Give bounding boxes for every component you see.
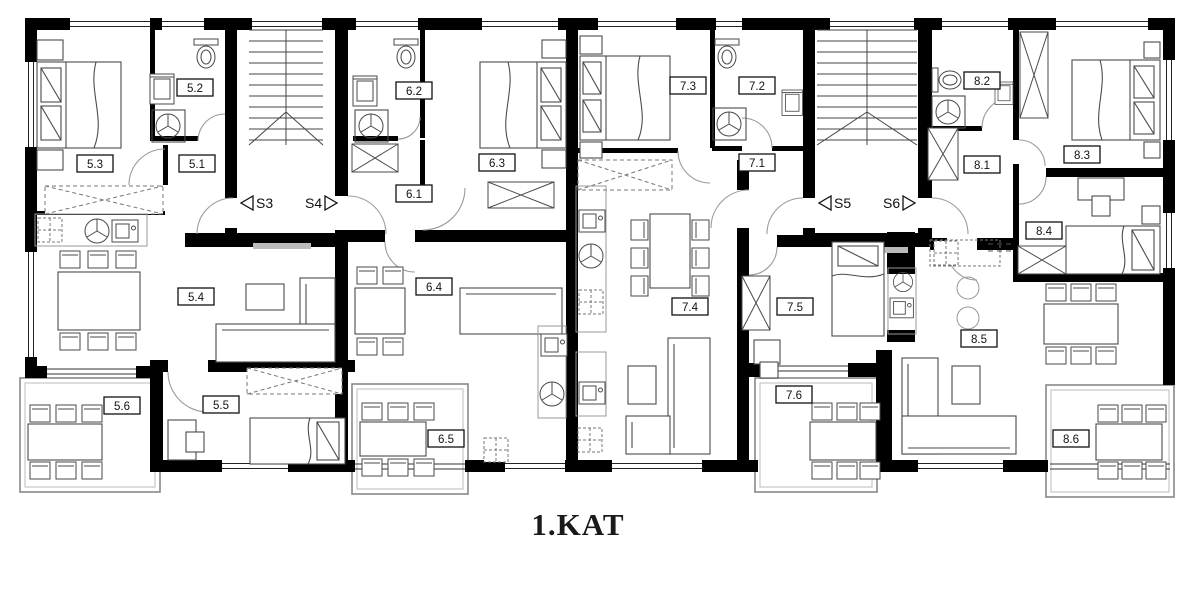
dining-table-set: [631, 214, 709, 296]
svg-text:5.5: 5.5: [213, 400, 229, 412]
room-label-5-1: 5.1: [179, 155, 215, 172]
wardrobe: [742, 276, 770, 330]
desk: [168, 420, 204, 460]
room-label-6-4: 6.4: [416, 278, 452, 295]
svg-text:8.1: 8.1: [974, 160, 990, 172]
sofa: [626, 338, 710, 454]
wardrobe: [45, 186, 163, 214]
floor-plan-page: S3 S4 S5 S6 5.3 5.2 5.1 5.4 5.5 5.6 6.2 …: [0, 0, 1200, 600]
room-label-7-3: 7.3: [670, 77, 706, 94]
stairwell-label-s5: S5: [834, 195, 851, 211]
wardrobe: [1018, 246, 1066, 274]
door-arc: [749, 247, 777, 275]
toilet-icon: [194, 39, 218, 68]
svg-text:7.5: 7.5: [787, 302, 803, 314]
svg-text:6.2: 6.2: [406, 86, 422, 98]
double-bed: [37, 40, 121, 170]
room-label-6-1: 6.1: [396, 185, 432, 202]
single-bed: [1066, 226, 1160, 274]
balcony-table-set: [1096, 405, 1166, 479]
svg-text:5.3: 5.3: [87, 159, 103, 171]
sink-icon: [713, 108, 746, 140]
stair-arrow-left-icon: [819, 196, 831, 210]
floor-plan: S3 S4 S5 S6 5.3 5.2 5.1 5.4 5.5 5.6 6.2 …: [0, 0, 1200, 600]
single-bed: [250, 418, 345, 464]
door-arc: [932, 198, 968, 234]
room-label-8-6: 8.6: [1053, 430, 1089, 447]
sofa: [460, 288, 562, 334]
door-arc: [1019, 140, 1045, 166]
balcony-table-set: [810, 403, 880, 479]
svg-text:5.1: 5.1: [189, 159, 205, 171]
staircase-s3-s4: [249, 30, 323, 249]
svg-text:7.4: 7.4: [682, 302, 699, 314]
svg-text:7.2: 7.2: [749, 81, 765, 93]
room-label-6-3: 6.3: [479, 154, 515, 171]
sofa: [902, 358, 1016, 454]
door-arc: [198, 114, 225, 141]
room-label-8-3: 8.3: [1064, 146, 1100, 163]
washing-machine-icon: [353, 76, 377, 106]
svg-text:6.3: 6.3: [489, 158, 505, 170]
svg-text:6.4: 6.4: [426, 282, 443, 294]
sofa: [216, 278, 335, 362]
wardrobe: [928, 128, 958, 180]
double-bed: [1072, 42, 1160, 158]
room-label-8-2: 8.2: [964, 72, 1000, 89]
stairwell-label-s4: S4: [305, 195, 322, 211]
room-label-8-5: 8.5: [961, 330, 997, 347]
stair-arrow-right-icon: [325, 196, 337, 210]
wardrobe: [1020, 32, 1048, 118]
door-arc: [678, 151, 710, 183]
room-label-7-5: 7.5: [777, 298, 813, 315]
dining-table-set: [1044, 284, 1118, 364]
door-arc: [398, 117, 420, 139]
stairwell-label-s6: S6: [883, 195, 900, 211]
svg-text:7.1: 7.1: [749, 158, 765, 170]
room-label-5-3: 5.3: [77, 155, 113, 172]
toilet-icon: [394, 39, 418, 68]
room-label-7-2: 7.2: [739, 77, 775, 94]
furniture: [28, 32, 1166, 479]
room-label-7-4: 7.4: [672, 298, 708, 315]
kitchen-counter: [576, 186, 606, 452]
double-bed: [580, 36, 670, 158]
svg-text:7.3: 7.3: [680, 81, 696, 93]
dining-table-set: [58, 251, 140, 350]
room-label-7-1: 7.1: [739, 154, 775, 171]
desk: [1078, 178, 1160, 224]
door-arc: [129, 149, 165, 185]
stair-arrow-left-icon: [241, 196, 253, 210]
staircase-s5-s6: [817, 30, 917, 253]
room-label-8-4: 8.4: [1026, 222, 1062, 239]
svg-text:6.1: 6.1: [406, 189, 422, 201]
washing-machine-icon: [782, 90, 802, 116]
washing-machine-icon: [150, 74, 174, 104]
wardrobe: [488, 182, 554, 208]
sink-icon: [932, 96, 965, 128]
balcony-table-set: [28, 405, 102, 479]
svg-text:8.2: 8.2: [974, 76, 990, 88]
svg-text:7.6: 7.6: [786, 390, 802, 402]
kitchen-counter: [35, 214, 147, 246]
kitchen-counter: [484, 326, 567, 462]
room-label-5-5: 5.5: [203, 396, 239, 413]
door-arc: [168, 372, 208, 412]
stairwell-label-s3: S3: [256, 195, 273, 211]
svg-text:6.5: 6.5: [438, 434, 454, 446]
room-label-5-4: 5.4: [178, 288, 214, 305]
door-arc: [348, 196, 386, 234]
room-label-8-1: 8.1: [964, 156, 1000, 173]
room-label-6-2: 6.2: [396, 82, 432, 99]
dining-table-set: [355, 267, 405, 355]
room-label-6-5: 6.5: [428, 430, 464, 447]
single-bed: [832, 242, 884, 336]
door-arc: [711, 190, 749, 228]
svg-text:8.6: 8.6: [1063, 434, 1079, 446]
toilet-icon: [932, 68, 961, 92]
room-label-7-6: 7.6: [776, 386, 812, 403]
svg-text:8.4: 8.4: [1036, 226, 1053, 238]
stair-arrow-right-icon: [903, 196, 915, 210]
balcony-table-set: [360, 403, 434, 476]
floor-title: 1.KAT: [531, 507, 624, 542]
svg-text:5.2: 5.2: [187, 83, 203, 95]
svg-text:5.4: 5.4: [188, 292, 205, 304]
door-arc: [767, 198, 803, 234]
wardrobe: [247, 368, 342, 394]
door-arc: [1019, 177, 1046, 204]
double-bed: [480, 40, 566, 168]
svg-text:8.5: 8.5: [971, 334, 987, 346]
toilet-icon: [715, 39, 739, 68]
room-label-5-6: 5.6: [104, 397, 140, 414]
wardrobe: [352, 144, 398, 172]
svg-text:5.6: 5.6: [114, 401, 130, 413]
svg-text:8.3: 8.3: [1074, 150, 1090, 162]
room-label-5-2: 5.2: [177, 79, 213, 96]
